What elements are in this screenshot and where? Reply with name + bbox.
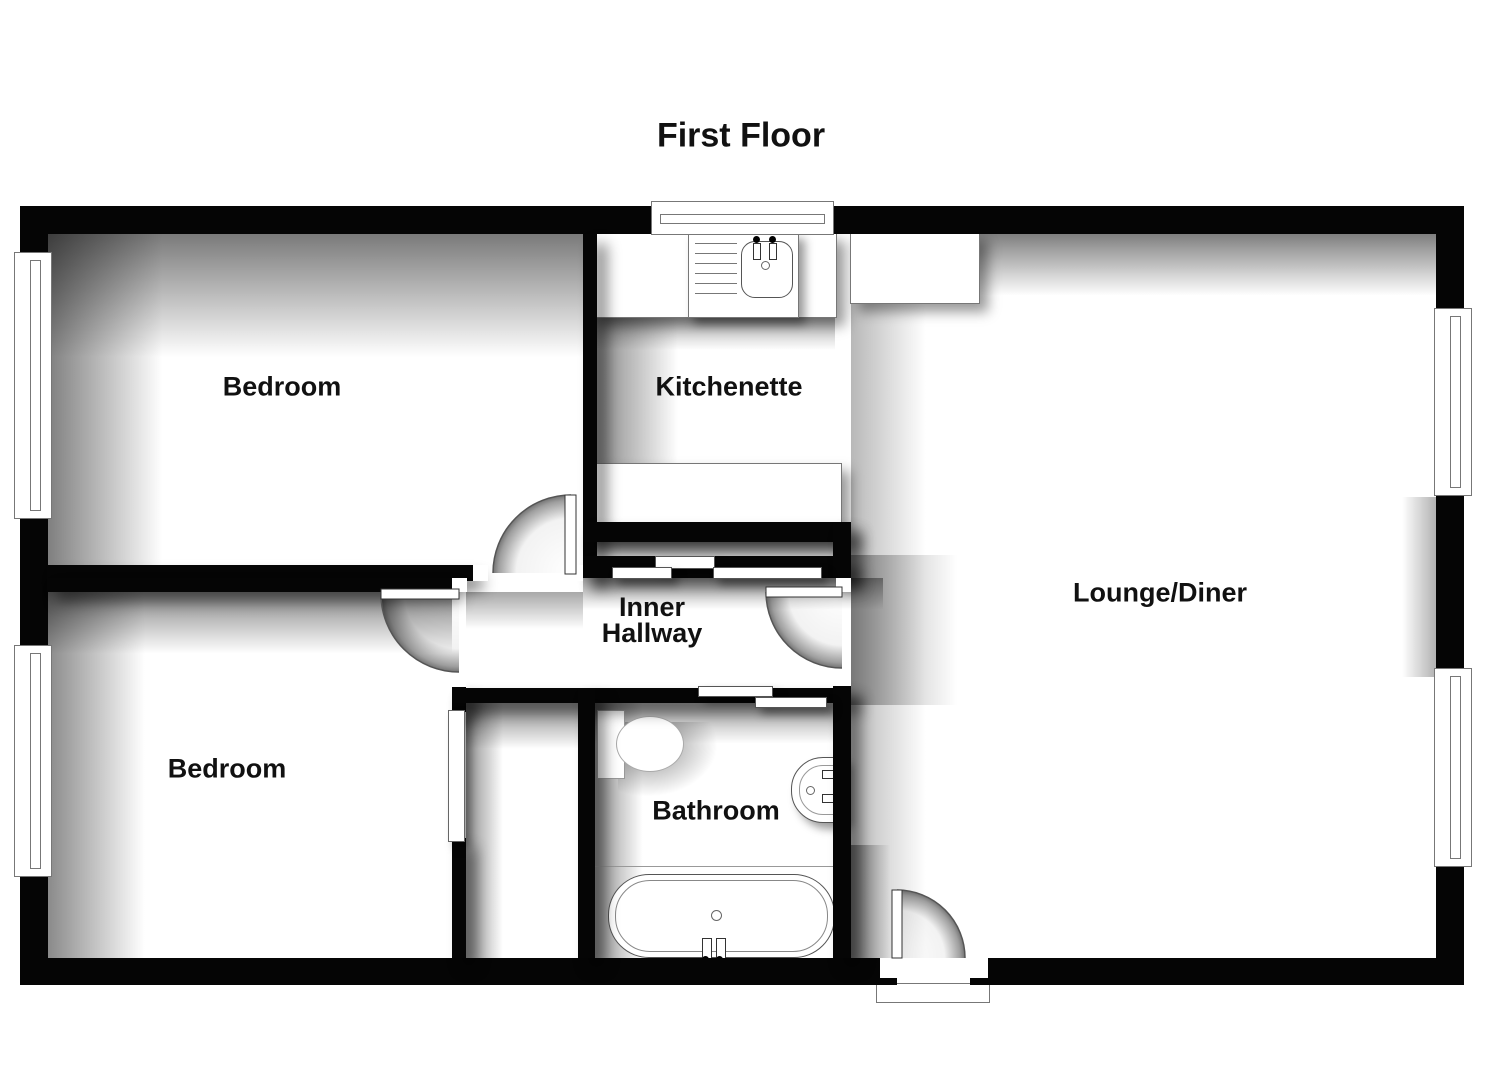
toilet-bowl-icon bbox=[616, 716, 684, 772]
shade-closet-top bbox=[466, 703, 578, 755]
shade-bedroom-top-left bbox=[48, 234, 178, 565]
shade-kitchenette-top bbox=[597, 316, 835, 354]
window-pane bbox=[1450, 316, 1461, 488]
shade-closet-left bbox=[466, 703, 508, 958]
shade-lounge-entry-gap bbox=[851, 845, 897, 958]
plan-title: First Floor bbox=[657, 117, 825, 156]
door-arc-bedroom-top-stroke bbox=[493, 495, 571, 573]
jamb-bedroom-top-left bbox=[473, 565, 488, 581]
door-leaf-entrance bbox=[892, 890, 902, 958]
kitchenette-sliding-panel bbox=[713, 567, 822, 579]
front-door-threshold bbox=[876, 983, 990, 1003]
wall-bathroom-left bbox=[578, 688, 595, 958]
kitchenette-sliding-panel bbox=[612, 567, 672, 579]
window-lounge-lower bbox=[1434, 668, 1472, 867]
sink-drainer-icon bbox=[695, 243, 737, 295]
shade-bedroom-top-top bbox=[48, 234, 583, 374]
wall-lounge-hall-upper bbox=[833, 522, 851, 578]
jamb-lounge-door-top bbox=[836, 578, 851, 592]
sink-tap-icon bbox=[753, 243, 761, 260]
bath-drain-icon bbox=[711, 910, 722, 921]
basin-drain-icon bbox=[806, 786, 815, 795]
exterior-wall-bottom-left bbox=[20, 958, 897, 985]
jamb-lounge-door-bottom bbox=[836, 672, 851, 686]
bathroom-sliding-panel bbox=[755, 697, 827, 708]
sink-tap-icon bbox=[769, 243, 777, 260]
window-pane bbox=[660, 214, 825, 224]
bedroom-closet-sliding-panel bbox=[448, 710, 465, 842]
room-label-kitchenette: Kitchenette bbox=[655, 372, 802, 403]
sink-tap-dot bbox=[753, 236, 760, 243]
door-arc-entrance bbox=[897, 890, 965, 958]
shade-bedroom-bottom-left bbox=[48, 592, 158, 958]
bathroom-sliding-panel bbox=[698, 686, 773, 697]
window-bedroom-bottom bbox=[14, 645, 52, 877]
exterior-wall-bottom-right bbox=[970, 958, 1464, 985]
shade-hallway-below-bedwall bbox=[466, 592, 583, 634]
wall-bedroom-bottom-right-lower bbox=[452, 838, 466, 958]
wall-bedroom-divider-lower bbox=[47, 578, 452, 592]
sink-overflow-icon bbox=[761, 261, 770, 270]
window-pane bbox=[1450, 676, 1461, 859]
first-floor-plan: First Floor Bedroom Kitchenette Lounge/D… bbox=[0, 0, 1485, 1080]
shade-lounge-right-wall bbox=[1396, 497, 1436, 677]
shade-hallway-recess bbox=[597, 542, 833, 556]
room-label-inner-hallway: Inner Hallway bbox=[602, 594, 703, 646]
room-label-bedroom-bottom: Bedroom bbox=[168, 754, 287, 785]
window-pane bbox=[30, 260, 41, 511]
room-label-bedroom-top: Bedroom bbox=[223, 372, 342, 403]
window-pane bbox=[30, 653, 41, 869]
room-label-bathroom: Bathroom bbox=[652, 796, 780, 827]
jamb-bedroom-bottom-bottom bbox=[450, 673, 466, 687]
shade-lounge-left bbox=[851, 234, 936, 958]
kitchen-worktop-bottom bbox=[596, 463, 842, 525]
door-leaf-lounge bbox=[766, 587, 842, 597]
wall-lounge-hall-lower bbox=[833, 686, 851, 958]
shade-lounge-door-smudge bbox=[851, 555, 976, 705]
jamb-entrance-left bbox=[880, 958, 898, 978]
window-bedroom-top bbox=[14, 252, 52, 519]
room-label-lounge-diner: Lounge/Diner bbox=[1073, 578, 1247, 609]
window-lounge-upper bbox=[1434, 308, 1472, 496]
door-leaf-bedroom-top bbox=[565, 495, 576, 574]
sink-tap-dot bbox=[769, 236, 776, 243]
kitchen-worktop-side bbox=[850, 232, 980, 304]
jamb-entrance-right bbox=[970, 958, 988, 978]
door-arc-lounge-stroke bbox=[766, 592, 842, 668]
jamb-bedroom-bottom-top bbox=[452, 578, 467, 592]
door-arc-entrance-stroke bbox=[897, 890, 965, 958]
wall-kitchenette-bottom bbox=[583, 522, 851, 542]
window-kitchenette bbox=[651, 201, 834, 235]
door-arc-bedroom-bottom bbox=[381, 594, 459, 672]
door-arc-bedroom-top bbox=[493, 495, 571, 573]
door-arc-bedroom-bottom-stroke bbox=[381, 594, 459, 672]
shade-bedroom-bottom-top bbox=[48, 592, 452, 662]
door-arc-lounge bbox=[766, 592, 842, 668]
room-label-inner-hallway-line2: Hallway bbox=[602, 618, 703, 648]
jamb-bedroom-top-right bbox=[568, 565, 583, 581]
bath-surround-line bbox=[595, 866, 833, 867]
